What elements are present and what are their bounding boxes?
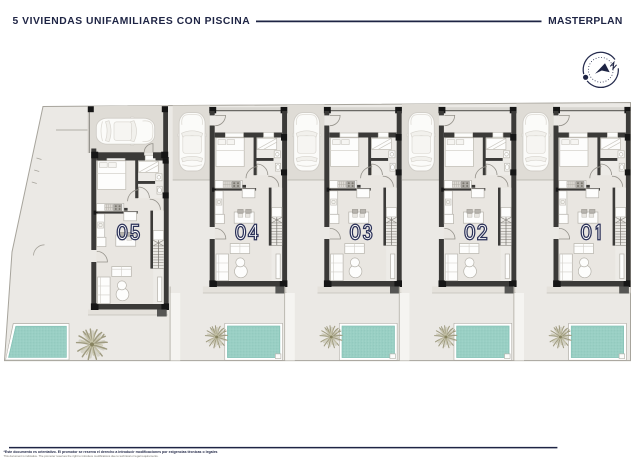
svg-text:MASTERPLAN: MASTERPLAN [548,16,623,27]
svg-text:5 VIVIENDAS UNIFAMILIARES CON: 5 VIVIENDAS UNIFAMILIARES CON PISCINA [13,16,251,27]
svg-text:This document is indicative. T: This document is indicative. The promote… [4,454,159,458]
